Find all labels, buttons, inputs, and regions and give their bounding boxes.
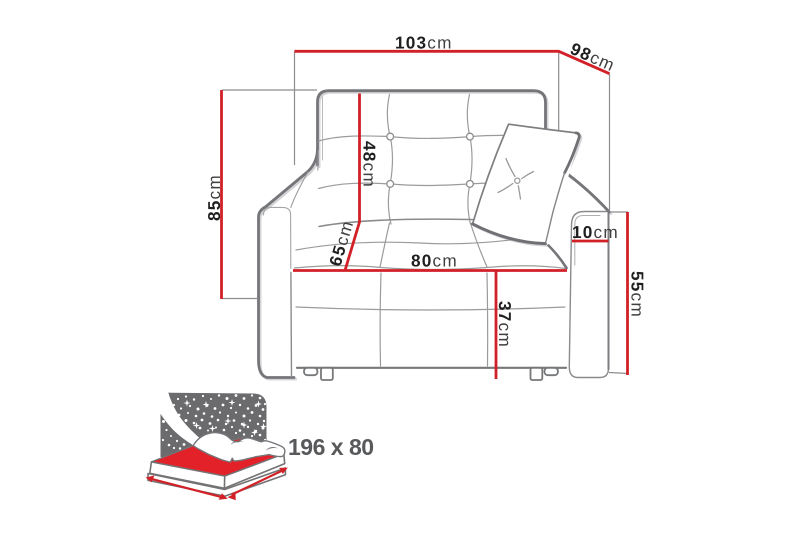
svg-text:196 x 80: 196 x 80 (288, 434, 374, 460)
svg-text:85cm: 85cm (204, 174, 224, 221)
svg-text:48cm: 48cm (360, 141, 380, 188)
svg-text:10cm: 10cm (572, 222, 619, 242)
svg-text:37cm: 37cm (495, 301, 515, 348)
svg-text:55cm: 55cm (628, 271, 648, 318)
svg-text:103cm: 103cm (395, 33, 453, 53)
svg-text:80cm: 80cm (411, 251, 458, 271)
